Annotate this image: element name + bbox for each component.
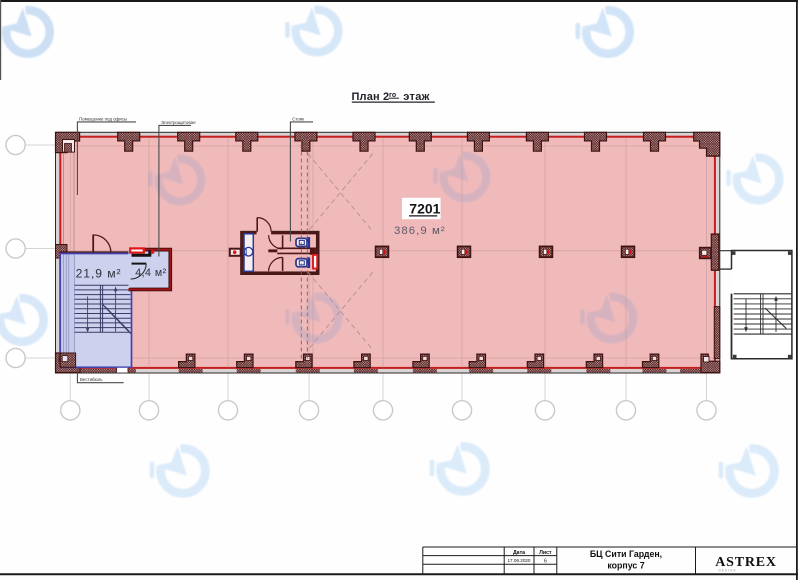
svg-text:План 2: План 2 [352, 91, 390, 103]
svg-text:корпус 7: корпус 7 [607, 561, 644, 571]
svg-text:17.06.2020: 17.06.2020 [508, 558, 531, 563]
svg-text:Стояк: Стояк [292, 117, 304, 122]
svg-text:386,9 м²: 386,9 м² [394, 225, 446, 237]
svg-text:6: 6 [544, 559, 547, 565]
svg-text:Лист: Лист [539, 550, 552, 556]
svg-text:7201: 7201 [409, 200, 440, 216]
svg-text:DESIGN: DESIGN [719, 569, 737, 573]
svg-text:БЦ Сити Гарден,: БЦ Сити Гарден, [590, 549, 662, 559]
svg-text:Дата: Дата [513, 550, 525, 556]
svg-text:Помещение под офисы: Помещение под офисы [79, 117, 127, 122]
svg-text:Электрощитовая: Электрощитовая [161, 120, 196, 125]
svg-text:этаж: этаж [403, 91, 429, 103]
svg-text:4,4 м²: 4,4 м² [135, 267, 166, 279]
svg-text:Вестибюль: Вестибюль [80, 377, 103, 382]
svg-text:21,9 м²: 21,9 м² [76, 267, 122, 281]
